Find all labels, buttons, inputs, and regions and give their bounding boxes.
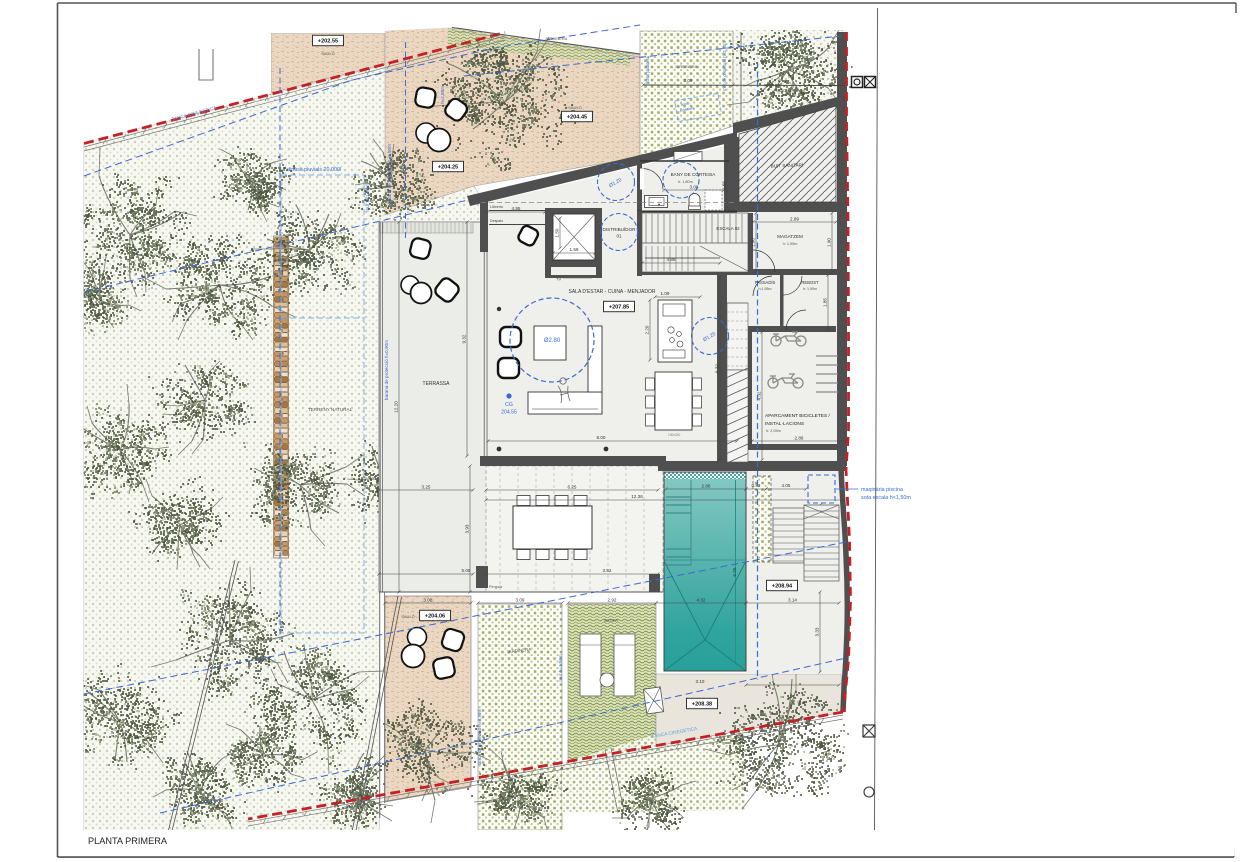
svg-text:TERRENY NATURAL: TERRENY NATURAL: [308, 407, 353, 412]
svg-text:2.88: 2.88: [702, 483, 711, 488]
svg-text:6.55: 6.55: [732, 567, 737, 576]
svg-text:1.90: 1.90: [751, 238, 756, 247]
svg-text:4.95: 4.95: [512, 206, 521, 211]
svg-text:barana de protecció h=0,90m: barana de protecció h=0,90m: [387, 144, 392, 204]
svg-text:h=2,80m: h=2,80m: [440, 86, 445, 104]
svg-text:mur h=1,50m: mur h=1,50m: [558, 654, 563, 681]
svg-text:+204.25: +204.25: [438, 165, 458, 171]
svg-text:3.10: 3.10: [696, 679, 705, 684]
svg-text:5.08: 5.08: [462, 568, 471, 573]
svg-text:Pèrgola: Pèrgola: [489, 585, 503, 589]
svg-text:3.14: 3.14: [788, 597, 797, 602]
svg-text:1.09: 1.09: [661, 291, 670, 296]
svg-text:barana de protecció h=0,90m: barana de protecció h=0,90m: [384, 340, 389, 400]
svg-text:mur h=1,50m: mur h=1,50m: [365, 184, 370, 211]
svg-text:+208.94: +208.94: [772, 584, 793, 590]
svg-text:1.50: 1.50: [555, 228, 560, 237]
svg-text:Despatx: Despatx: [490, 219, 503, 223]
svg-text:1.90: 1.90: [827, 238, 832, 247]
svg-text:tanca de protecció h=0,90m: tanca de protecció h=0,90m: [477, 708, 482, 765]
svg-text:REBOST: REBOST: [801, 280, 819, 285]
svg-text:+204.06: +204.06: [425, 614, 445, 620]
svg-text:6.25: 6.25: [568, 484, 577, 489]
svg-text:llums jardinera: llums jardinera: [645, 56, 650, 84]
svg-text:3.09: 3.09: [684, 78, 693, 83]
svg-text:+202.55: +202.55: [318, 39, 338, 45]
svg-text:GESPA: GESPA: [604, 618, 618, 623]
svg-text:APARCAMENT BICICLETES /: APARCAMENT BICICLETES /: [765, 413, 831, 419]
svg-text:12.20: 12.20: [394, 401, 399, 413]
svg-text:CG: CG: [505, 402, 513, 408]
svg-text:6.32: 6.32: [715, 364, 720, 373]
svg-text:+207.85: +207.85: [609, 305, 629, 311]
svg-text:0.83: 0.83: [752, 483, 761, 488]
svg-text:TERRASSA: TERRASSA: [423, 381, 451, 387]
svg-text:+208.38: +208.38: [692, 702, 712, 708]
svg-text:4.05: 4.05: [782, 483, 791, 488]
svg-text:4.32: 4.32: [697, 597, 706, 602]
svg-text:mur de contenció h=2,80m: mur de contenció h=2,80m: [722, 41, 727, 91]
svg-text:TV: TV: [556, 277, 561, 282]
svg-text:2.92: 2.92: [608, 597, 617, 602]
svg-text:JARDINERA: JARDINERA: [545, 36, 568, 41]
svg-text:sota escala h<1,50m: sota escala h<1,50m: [861, 495, 911, 501]
svg-text:DISTRIBUÏDOR: DISTRIBUÏDOR: [603, 226, 637, 232]
svg-text:SAULÓ: SAULÓ: [401, 614, 415, 619]
svg-text:SALA D'ESTAR - CUINA - MENJADO: SALA D'ESTAR - CUINA - MENJADOR: [569, 289, 656, 295]
svg-text:3.08: 3.08: [424, 597, 433, 602]
svg-text:4.89: 4.89: [667, 257, 676, 262]
svg-text:1.59: 1.59: [570, 247, 579, 252]
svg-text:h: 1,95m: h: 1,95m: [803, 287, 817, 291]
svg-text:h: 2,05m: h: 2,05m: [766, 429, 781, 433]
svg-text:3.33: 3.33: [815, 627, 820, 636]
svg-text:9.32: 9.32: [462, 334, 467, 343]
svg-text:12.36: 12.36: [631, 494, 643, 499]
svg-text:3.25: 3.25: [422, 484, 431, 489]
svg-text:3.52: 3.52: [603, 568, 612, 573]
svg-text:ESCALA 02: ESCALA 02: [716, 226, 740, 231]
svg-text:8.00: 8.00: [597, 435, 606, 440]
svg-text:3.09: 3.09: [516, 597, 525, 602]
svg-text:3.93: 3.93: [465, 524, 470, 533]
svg-text:01: 01: [616, 234, 622, 239]
svg-text:Llibreria: Llibreria: [490, 205, 503, 209]
svg-text:130x220: 130x220: [668, 433, 680, 437]
svg-text:PASSADÍS: PASSADÍS: [755, 280, 776, 285]
svg-text:PLANTA PRIMERA: PLANTA PRIMERA: [88, 836, 168, 846]
svg-text:204.55: 204.55: [501, 410, 517, 416]
svg-text:+204.45: +204.45: [567, 115, 587, 121]
svg-text:2.89: 2.89: [790, 216, 799, 221]
svg-text:h: 1,95m: h: 1,95m: [783, 242, 798, 246]
svg-text:maqinària piscina: maqinària piscina: [861, 487, 903, 493]
svg-text:SAULÓ: SAULÓ: [321, 51, 335, 56]
svg-text:INSTAL·LACIONS: INSTAL·LACIONS: [765, 421, 804, 427]
svg-text:1.85: 1.85: [823, 298, 828, 307]
svg-text:h:1,95m: h:1,95m: [759, 287, 772, 291]
svg-text:Ø2.80: Ø2.80: [544, 338, 561, 344]
svg-text:2.20: 2.20: [645, 325, 650, 334]
svg-text:h: 1,80m: h: 1,80m: [678, 180, 693, 184]
svg-text:BANY DE CORTESIA: BANY DE CORTESIA: [671, 172, 717, 177]
svg-text:MAGATZEM: MAGATZEM: [777, 234, 803, 239]
svg-text:SAULÓ: SAULÓ: [568, 105, 582, 110]
svg-text:JARDINERA: JARDINERA: [776, 88, 799, 93]
svg-text:2.86: 2.86: [795, 435, 804, 440]
svg-text:dipòsit pluvials 20.000l: dipòsit pluvials 20.000l: [287, 167, 341, 173]
svg-text:JARDINERA: JARDINERA: [675, 64, 698, 69]
